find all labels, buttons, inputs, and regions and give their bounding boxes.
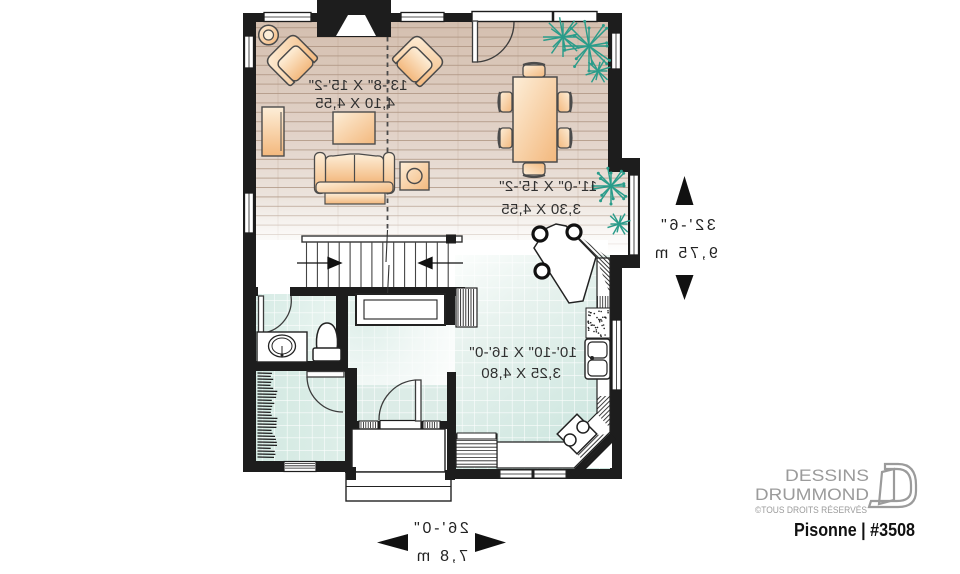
svg-text:11'-0" X 15'-2": 11'-0" X 15'-2" [499,178,597,195]
svg-text:DESSINS: DESSINS [785,467,869,485]
svg-text:32'-6": 32'-6" [658,217,716,234]
svg-text:26'-0": 26'-0" [411,520,469,537]
svg-text:7,8 m: 7,8 m [414,548,468,565]
svg-text:DRUMMOND: DRUMMOND [755,486,869,504]
svg-text:4,10 X 4,55: 4,10 X 4,55 [315,95,395,112]
svg-text:Pisonne | #3508: Pisonne | #3508 [794,519,915,540]
svg-text:9,75 m: 9,75 m [652,245,718,262]
svg-text:3,30 X 4,55: 3,30 X 4,55 [501,201,581,218]
svg-text:©TOUS DROITS RÉSERVÉS: ©TOUS DROITS RÉSERVÉS [755,505,867,515]
svg-text:13'-8" X 15'-2": 13'-8" X 15'-2" [308,77,407,94]
svg-text:3,25 X 4,80: 3,25 X 4,80 [481,365,561,382]
svg-text:10'-10" X 16'-0": 10'-10" X 16'-0" [469,344,577,361]
